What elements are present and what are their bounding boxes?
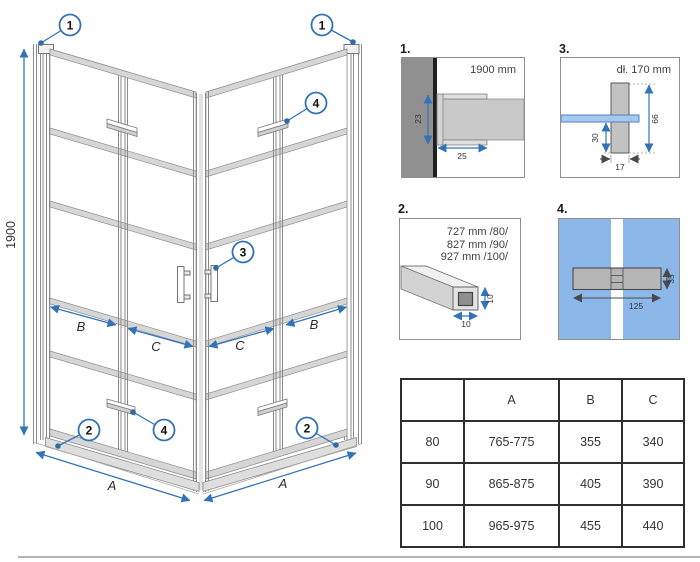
header-size	[401, 379, 464, 421]
length-80: 727 mm /80/	[441, 226, 508, 239]
wall-channel-profile	[437, 94, 443, 145]
shower-enclosure-isometric-diagram: 1900 B C C B A A 1 1 4 3 4 2 2	[0, 0, 395, 562]
cell-c: 390	[622, 463, 684, 505]
detail-1-wall-profile: 23 25 1900 mm	[401, 57, 525, 178]
detail-2-dim-h: 10	[485, 294, 495, 304]
glass-edge	[443, 99, 524, 140]
detail-3-stabilizer: 66 30 17 dł. 170 mm	[560, 57, 680, 178]
detail-1-note: 1900 mm	[470, 64, 516, 76]
detail-3-dim-17: 17	[615, 162, 625, 172]
callout-2-right: 2	[304, 421, 311, 435]
detail-3-dim-30: 30	[590, 133, 600, 143]
cell-b: 405	[559, 463, 622, 505]
detail-4-label: 4.	[557, 202, 567, 216]
detail-2-label: 2.	[398, 202, 408, 216]
dim-a-right: A	[278, 476, 288, 491]
detail-4-handle: 125 35	[558, 218, 680, 340]
detail-1-dim-25: 25	[457, 151, 467, 161]
table-row: 90 865-875 405 390	[401, 463, 684, 505]
header-b: B	[559, 379, 622, 421]
detail-4-dim-35: 35	[666, 274, 676, 284]
dim-c-right: C	[235, 338, 245, 353]
handle-body	[573, 268, 661, 290]
cell-size: 100	[401, 505, 464, 547]
height-dimension-label: 1900	[4, 221, 18, 249]
cell-a: 865-875	[464, 463, 559, 505]
dim-a-left: A	[107, 478, 117, 493]
table-row: 100 965-975 455 440	[401, 505, 684, 547]
detail-3-dim-66: 66	[650, 114, 660, 124]
detail-2-dim-w: 10	[461, 319, 471, 329]
callout-3: 3	[240, 245, 247, 259]
detail-2-square-tube: 10 10 727 mm /80/ 827 mm /90/ 927 mm /10…	[399, 218, 521, 340]
glass-panels	[50, 49, 347, 479]
dim-b-right: B	[310, 317, 319, 332]
detail-3-note: dł. 170 mm	[617, 64, 671, 76]
table-header-row: A B C	[401, 379, 684, 421]
detail-3-label: 3.	[559, 42, 569, 56]
length-90: 827 mm /90/	[441, 239, 508, 252]
cell-b: 355	[559, 421, 622, 463]
glass-bar	[561, 115, 639, 122]
table-row: 80 765-775 355 340	[401, 421, 684, 463]
cell-size: 80	[401, 421, 464, 463]
cell-c: 440	[622, 505, 684, 547]
callout-1-right: 1	[319, 18, 326, 32]
cell-a: 765-775	[464, 421, 559, 463]
cell-c: 340	[622, 421, 684, 463]
callout-4-top: 4	[313, 96, 320, 110]
detail-1-dim-23: 23	[413, 114, 423, 124]
detail-4-dim-125: 125	[629, 301, 643, 311]
callout-2-left: 2	[86, 423, 93, 437]
callout-4-bottom: 4	[161, 423, 168, 437]
cell-b: 455	[559, 505, 622, 547]
cell-size: 90	[401, 463, 464, 505]
dim-b-left: B	[77, 319, 86, 334]
door-pulls	[178, 266, 218, 303]
size-table: A B C 80 765-775 355 340 90 865-875 405 …	[400, 378, 685, 548]
header-c: C	[622, 379, 684, 421]
dim-c-left: C	[151, 339, 161, 354]
detail-1-label: 1.	[400, 42, 410, 56]
cell-a: 965-975	[464, 505, 559, 547]
length-100: 927 mm /100/	[441, 251, 508, 264]
detail-2-length-options: 727 mm /80/ 827 mm /90/ 927 mm /100/	[441, 226, 508, 264]
cropped-caption-line	[18, 556, 700, 558]
header-a: A	[464, 379, 559, 421]
callout-1-left: 1	[67, 18, 74, 32]
